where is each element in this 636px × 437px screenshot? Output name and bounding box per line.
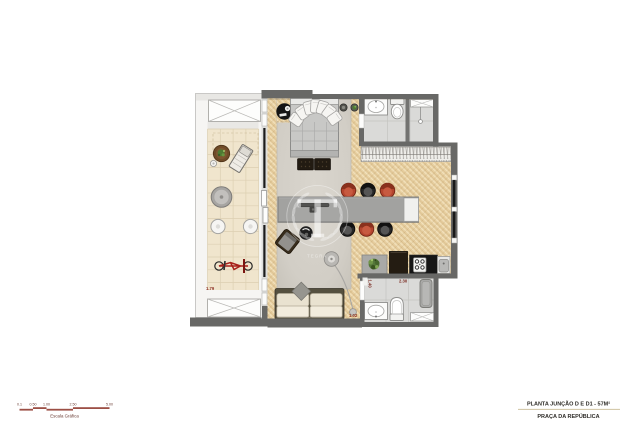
svg-text:Escala Gráfica: Escala Gráfica xyxy=(50,413,79,418)
svg-text:1.79: 1.79 xyxy=(206,286,215,291)
svg-text:PRAÇA DA REPÚBLICA: PRAÇA DA REPÚBLICA xyxy=(537,413,599,420)
svg-text:2.30: 2.30 xyxy=(399,279,408,284)
svg-text:1.02: 1.02 xyxy=(349,313,358,318)
svg-text:0.50: 0.50 xyxy=(30,403,37,407)
svg-text:2.50: 2.50 xyxy=(70,403,77,407)
svg-text:1.00: 1.00 xyxy=(43,403,50,407)
svg-text:1.40: 1.40 xyxy=(368,280,373,289)
svg-text:PLANTA JUNÇÃO D E D1 - 57M²: PLANTA JUNÇÃO D E D1 - 57M² xyxy=(527,400,610,407)
svg-text:0.1: 0.1 xyxy=(17,403,22,407)
svg-text:5.00: 5.00 xyxy=(106,403,113,407)
svg-text:TEGRA: TEGRA xyxy=(307,254,327,259)
